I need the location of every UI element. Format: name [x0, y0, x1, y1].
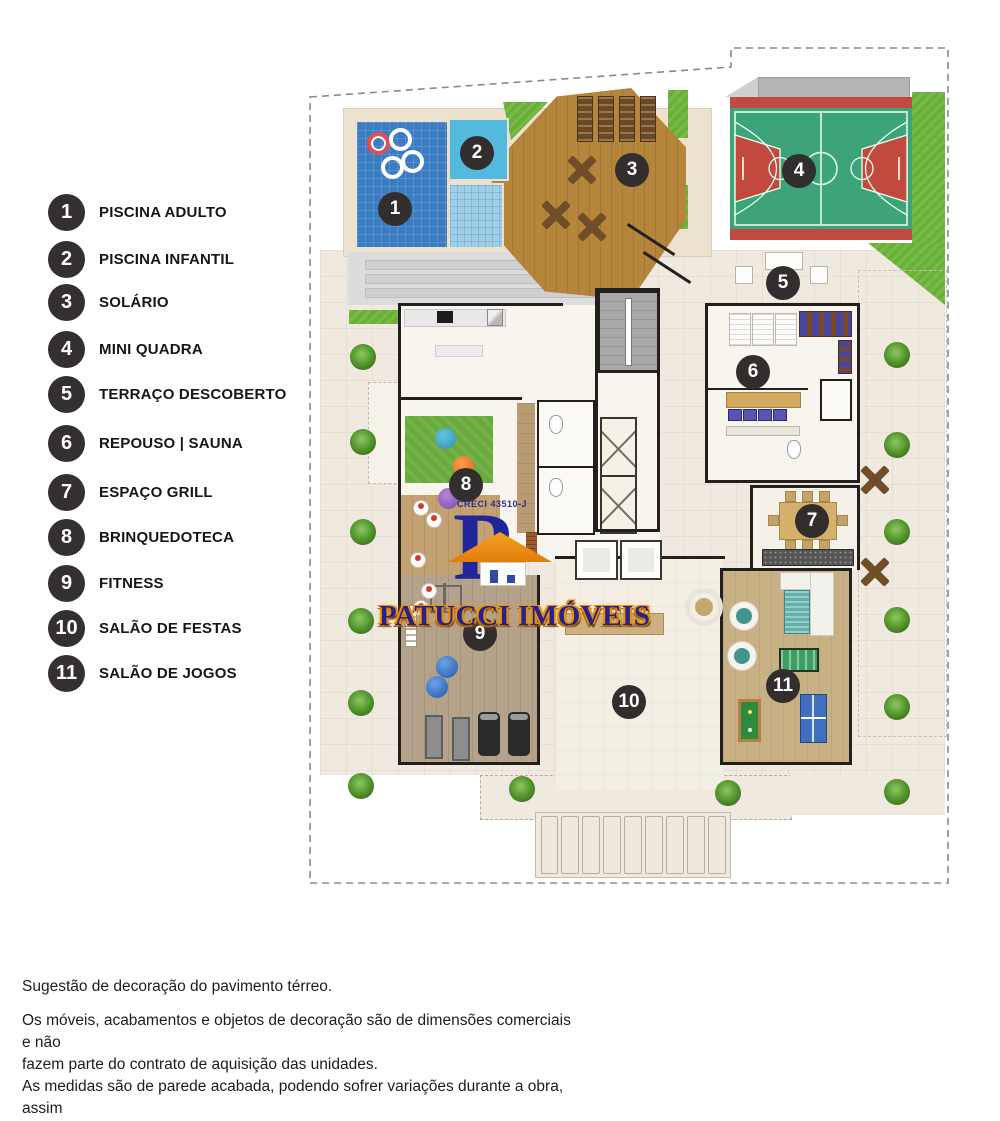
- plan-marker-10: 10: [612, 685, 646, 719]
- treadmill: [478, 712, 500, 756]
- legend-label: PISCINA INFANTIL: [99, 251, 234, 268]
- legend-label: SOLÁRIO: [99, 294, 169, 311]
- ramp-slat: [666, 816, 684, 874]
- plan-marker-4: 4: [782, 154, 816, 188]
- disclaimer-title: Sugestão de decoração do pavimento térre…: [22, 978, 582, 996]
- disclaimer-lines: Os móveis, acabamentos e objetos de deco…: [22, 1010, 582, 1121]
- tree-icon: [884, 694, 910, 720]
- washbasin-counter: [726, 426, 800, 436]
- ramp-slat: [603, 816, 621, 874]
- pingpong-line: [812, 695, 814, 742]
- cooktop: [437, 311, 453, 323]
- plan-marker-1: 1: [378, 192, 412, 226]
- legend-item-9: 9FITNESS: [48, 565, 164, 602]
- legend-item-3: 3SOLÁRIO: [48, 284, 169, 321]
- playroom-mat: [405, 416, 493, 483]
- legend-label: FITNESS: [99, 575, 164, 592]
- game-table-top: [734, 648, 750, 664]
- curved-bench-table-top: [695, 598, 713, 616]
- treadmill-console: [480, 714, 498, 720]
- legend-number-badge: 5: [48, 376, 85, 413]
- billiard-ball: [748, 710, 752, 714]
- legend-item-8: 8BRINQUEDOTECA: [48, 519, 234, 556]
- wall: [657, 288, 660, 532]
- logo-house-icon: [480, 562, 526, 586]
- legend-label: ESPAÇO GRILL: [99, 484, 213, 501]
- ramp-slat: [687, 816, 705, 874]
- kids-chair: [426, 512, 442, 528]
- plan-marker-6: 6: [736, 355, 770, 389]
- plan-marker-7: 7: [795, 504, 829, 538]
- picnic-table-icon: [860, 465, 890, 495]
- legend-number-badge: 2: [48, 241, 85, 278]
- party-room-annex: [620, 540, 662, 580]
- tree-icon: [884, 432, 910, 458]
- floorplan-page: 1PISCINA ADULTO2PISCINA INFANTIL3SOLÁRIO…: [0, 0, 1000, 1121]
- wall: [398, 303, 563, 306]
- treadmill: [508, 712, 530, 756]
- toilet-icon: [549, 415, 563, 434]
- legend-item-2: 2PISCINA INFANTIL: [48, 241, 234, 278]
- toilet-icon: [787, 440, 801, 459]
- tree-icon: [884, 779, 910, 805]
- terrace-side-table: [810, 266, 828, 284]
- disclaimer-line: As medidas são de parede acabada, podend…: [22, 1076, 582, 1120]
- picnic-table-icon: [860, 557, 890, 587]
- swim-ring-icon: [401, 150, 424, 173]
- game-table: [730, 602, 758, 630]
- elevator-shaft: [600, 475, 637, 534]
- tree-icon: [715, 780, 741, 806]
- right-terrace: [858, 270, 947, 737]
- toilet-icon: [549, 478, 563, 497]
- legend-number-badge: 8: [48, 519, 85, 556]
- shelf-unit: [838, 340, 852, 374]
- weight-station: [452, 717, 470, 761]
- legend-number-badge: 11: [48, 655, 85, 692]
- sauna-window: [758, 409, 772, 421]
- tree-icon: [350, 429, 376, 455]
- pool-table: [738, 699, 761, 742]
- pouf-blue: [435, 428, 456, 449]
- sauna-divider: [708, 388, 808, 390]
- logo-wordmark: PATUCCI IMÓVEIS: [379, 600, 650, 633]
- hallway-wood-strip: [517, 403, 535, 533]
- deck-lounger-icon: [577, 96, 593, 142]
- plan-marker-3: 3: [615, 153, 649, 187]
- ramp-slat: [582, 816, 600, 874]
- billiard-ball: [748, 728, 752, 732]
- legend-item-11: 11SALÃO DE JOGOS: [48, 655, 237, 692]
- grill-counter: [762, 549, 854, 566]
- kids-chair: [413, 500, 429, 516]
- legend-item-10: 10SALÃO DE FESTAS: [48, 610, 242, 647]
- ramp-slat: [561, 816, 579, 874]
- annex-inner: [628, 548, 654, 572]
- legend-number-badge: 4: [48, 331, 85, 368]
- annex-inner: [583, 548, 610, 572]
- wall: [398, 762, 540, 765]
- house-window: [507, 575, 515, 583]
- mini-court: [730, 97, 912, 240]
- treadmill-console: [510, 714, 528, 720]
- grill-chair: [802, 491, 813, 502]
- kitchen-island: [435, 345, 483, 357]
- disclaimer-line: fazem parte do contrato de aquisição das…: [22, 1054, 582, 1076]
- ramp-slat: [624, 816, 642, 874]
- legend-label: REPOUSO | SAUNA: [99, 435, 243, 452]
- legend-label: BRINQUEDOTECA: [99, 529, 234, 546]
- tree-icon: [348, 608, 374, 634]
- curved-bench-table: [685, 588, 723, 626]
- deck-table-icon: [577, 212, 607, 242]
- game-table-top: [736, 608, 752, 624]
- tree-icon: [884, 519, 910, 545]
- legend-number-badge: 3: [48, 284, 85, 321]
- grass-strip-right-of-court: [912, 92, 945, 250]
- legend-label: TERRAÇO DESCOBERTO: [99, 386, 287, 403]
- deck-table-icon: [567, 155, 597, 185]
- grill-chair: [785, 491, 796, 502]
- legend-label: SALÃO DE JOGOS: [99, 665, 237, 682]
- legend-label: MINI QUADRA: [99, 341, 203, 358]
- grill-chair: [819, 491, 830, 502]
- plan-marker-11: 11: [766, 669, 800, 703]
- tree-icon: [350, 344, 376, 370]
- rest-lounger-icon: [729, 313, 751, 346]
- ground-floor-plan: 1234567891011 CRECI 43510-J P PATUCCI IM…: [305, 40, 955, 890]
- pool-step: [365, 260, 542, 270]
- pool-shallow-area: [448, 183, 504, 249]
- legend-number-badge: 9: [48, 565, 85, 602]
- ramp-slat: [708, 816, 726, 874]
- sauna-bench: [726, 392, 801, 408]
- wall: [400, 397, 522, 400]
- kids-chair: [421, 583, 437, 599]
- elevator-shaft: [600, 417, 637, 479]
- shelf-unit: [799, 311, 852, 337]
- legend-item-1: 1PISCINA ADULTO: [48, 194, 227, 231]
- grill-chair: [837, 515, 848, 526]
- deck-lounger-icon: [598, 96, 614, 142]
- ramp-slat: [541, 816, 559, 874]
- grill-chair: [768, 515, 779, 526]
- legend-number-badge: 6: [48, 425, 85, 462]
- gym-ball: [436, 656, 458, 678]
- game-table: [728, 642, 756, 670]
- grass-strip: [349, 310, 401, 324]
- couch: [810, 572, 834, 636]
- bottom-right-pavement: [790, 775, 945, 815]
- rug: [784, 590, 810, 634]
- lifebuoy-icon: [367, 132, 390, 155]
- pingpong-table: [800, 694, 827, 743]
- plan-marker-5: 5: [766, 266, 800, 300]
- disclaimer: Sugestão de decoração do pavimento térre…: [22, 978, 582, 1121]
- ramp-slat: [645, 816, 663, 874]
- wall: [398, 303, 401, 765]
- rest-lounger-icon: [752, 313, 774, 346]
- tree-icon: [348, 773, 374, 799]
- tree-icon: [350, 519, 376, 545]
- tree-icon: [348, 690, 374, 716]
- wall: [595, 288, 660, 291]
- fridge: [487, 309, 503, 326]
- kids-chair: [410, 552, 426, 568]
- sidewalk-strip: [758, 77, 910, 99]
- disclaimer-line: Os móveis, acabamentos e objetos de deco…: [22, 1010, 582, 1054]
- legend-item-5: 5TERRAÇO DESCOBERTO: [48, 376, 287, 413]
- deck-table-icon: [541, 200, 571, 230]
- deck-lounger-icon: [619, 96, 635, 142]
- sauna-window: [728, 409, 742, 421]
- party-room-annex: [575, 540, 618, 580]
- legend-item-7: 7ESPAÇO GRILL: [48, 474, 213, 511]
- wc-divider: [537, 466, 595, 468]
- stair-rail: [625, 298, 632, 366]
- tree-icon: [509, 776, 535, 802]
- deck-lounger-icon: [640, 96, 656, 142]
- entry-ramp: [535, 812, 731, 878]
- tree-icon: [884, 342, 910, 368]
- legend-number-badge: 7: [48, 474, 85, 511]
- plan-marker-2: 2: [460, 136, 494, 170]
- tree-icon: [884, 607, 910, 633]
- house-door: [490, 570, 498, 583]
- weight-station: [425, 715, 443, 759]
- legend-item-6: 6REPOUSO | SAUNA: [48, 425, 243, 462]
- rest-lounger-icon: [775, 313, 797, 346]
- grass-patch: [668, 90, 688, 138]
- terrace-side-table: [735, 266, 753, 284]
- wall: [595, 288, 598, 532]
- wall: [595, 529, 660, 532]
- legend-label: SALÃO DE FESTAS: [99, 620, 242, 637]
- sauna-window: [743, 409, 757, 421]
- sauna-window: [773, 409, 787, 421]
- swim-ring-icon: [389, 128, 412, 151]
- legend-item-4: 4MINI QUADRA: [48, 331, 203, 368]
- gym-ball: [426, 676, 448, 698]
- legend-label: PISCINA ADULTO: [99, 204, 227, 221]
- closet: [820, 379, 852, 421]
- legend-number-badge: 1: [48, 194, 85, 231]
- legend-number-badge: 10: [48, 610, 85, 647]
